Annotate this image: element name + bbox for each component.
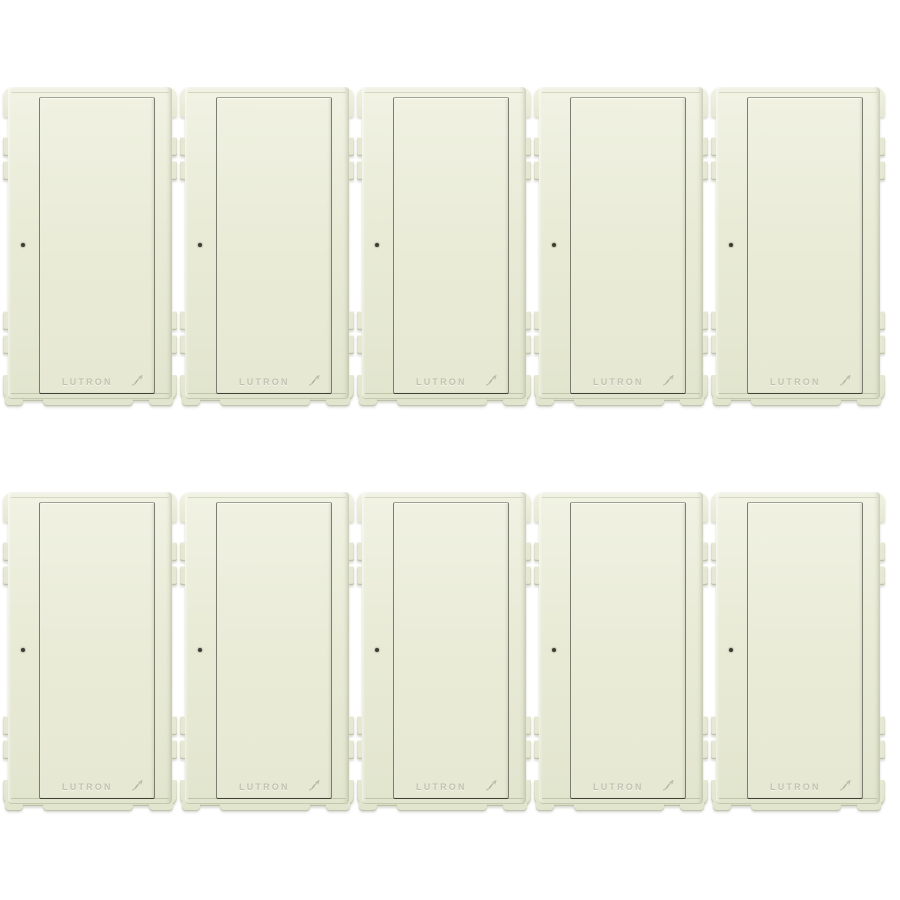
led-indicator-dot	[729, 243, 733, 247]
switch-paddle: LUTRON	[393, 97, 509, 394]
frame-body: LUTRON	[716, 87, 880, 399]
brand-row: LUTRON	[770, 374, 852, 387]
frame-body: LUTRON	[362, 492, 526, 804]
brand-embossed-text: LUTRON	[770, 782, 821, 792]
frame-top-edge-line	[719, 497, 877, 498]
brand-embossed-text: LUTRON	[770, 377, 821, 387]
brand-row: LUTRON	[62, 374, 144, 387]
brand-embossed-text: LUTRON	[239, 782, 290, 792]
frame-top-edge-line	[365, 92, 523, 93]
switch-paddle: LUTRON	[747, 97, 863, 394]
brand-row: LUTRON	[416, 779, 498, 792]
frame-top-edge-line	[542, 92, 700, 93]
frame-top-edge-line	[719, 92, 877, 93]
switch-color-kit-unit: LUTRON	[534, 492, 708, 810]
brand-row: LUTRON	[593, 779, 675, 792]
lutron-logo-icon	[662, 779, 675, 792]
led-indicator-dot	[375, 648, 379, 652]
frame-top-edge-line	[11, 497, 169, 498]
frame-top-edge-line	[188, 497, 346, 498]
led-indicator-dot	[21, 243, 25, 247]
lutron-logo-icon	[839, 779, 852, 792]
switch-color-kit-unit: LUTRON	[534, 87, 708, 405]
frame-body: LUTRON	[8, 87, 172, 399]
lutron-logo-icon	[308, 779, 321, 792]
switch-paddle: LUTRON	[393, 502, 509, 799]
switch-paddle: LUTRON	[747, 502, 863, 799]
frame-body: LUTRON	[716, 492, 880, 804]
switch-color-kit-unit: LUTRON	[711, 87, 885, 405]
switch-color-kit-unit: LUTRON	[711, 492, 885, 810]
brand-row: LUTRON	[62, 779, 144, 792]
switch-color-kit-unit: LUTRON	[3, 492, 177, 810]
switch-color-kit-unit: LUTRON	[3, 87, 177, 405]
product-grid: LUTRON	[3, 87, 885, 810]
frame-top-edge-line	[365, 497, 523, 498]
switch-color-kit-unit: LUTRON	[180, 492, 354, 810]
led-indicator-dot	[198, 648, 202, 652]
frame-body: LUTRON	[185, 492, 349, 804]
switch-paddle: LUTRON	[216, 502, 332, 799]
frame-body: LUTRON	[539, 87, 703, 399]
lutron-logo-icon	[839, 374, 852, 387]
switch-paddle: LUTRON	[570, 502, 686, 799]
switch-color-kit-unit: LUTRON	[357, 87, 531, 405]
frame-top-edge-line	[542, 497, 700, 498]
switch-paddle: LUTRON	[39, 502, 155, 799]
brand-row: LUTRON	[593, 374, 675, 387]
led-indicator-dot	[552, 243, 556, 247]
brand-row: LUTRON	[416, 374, 498, 387]
brand-row: LUTRON	[239, 779, 321, 792]
frame-top-edge-line	[11, 92, 169, 93]
frame-body: LUTRON	[362, 87, 526, 399]
brand-embossed-text: LUTRON	[416, 782, 467, 792]
switch-color-kit-unit: LUTRON	[357, 492, 531, 810]
switch-paddle: LUTRON	[216, 97, 332, 394]
lutron-logo-icon	[662, 374, 675, 387]
brand-embossed-text: LUTRON	[593, 377, 644, 387]
frame-top-edge-line	[188, 92, 346, 93]
lutron-logo-icon	[131, 374, 144, 387]
brand-row: LUTRON	[770, 779, 852, 792]
led-indicator-dot	[21, 648, 25, 652]
brand-embossed-text: LUTRON	[416, 377, 467, 387]
frame-body: LUTRON	[539, 492, 703, 804]
lutron-logo-icon	[308, 374, 321, 387]
product-photo-canvas: LUTRON	[0, 0, 900, 900]
brand-embossed-text: LUTRON	[62, 782, 113, 792]
switch-paddle: LUTRON	[39, 97, 155, 394]
frame-body: LUTRON	[8, 492, 172, 804]
led-indicator-dot	[198, 243, 202, 247]
led-indicator-dot	[375, 243, 379, 247]
brand-embossed-text: LUTRON	[62, 377, 113, 387]
switch-color-kit-unit: LUTRON	[180, 87, 354, 405]
frame-body: LUTRON	[185, 87, 349, 399]
lutron-logo-icon	[485, 374, 498, 387]
brand-row: LUTRON	[239, 374, 321, 387]
brand-embossed-text: LUTRON	[593, 782, 644, 792]
switch-paddle: LUTRON	[570, 97, 686, 394]
led-indicator-dot	[552, 648, 556, 652]
lutron-logo-icon	[131, 779, 144, 792]
lutron-logo-icon	[485, 779, 498, 792]
led-indicator-dot	[729, 648, 733, 652]
brand-embossed-text: LUTRON	[239, 377, 290, 387]
